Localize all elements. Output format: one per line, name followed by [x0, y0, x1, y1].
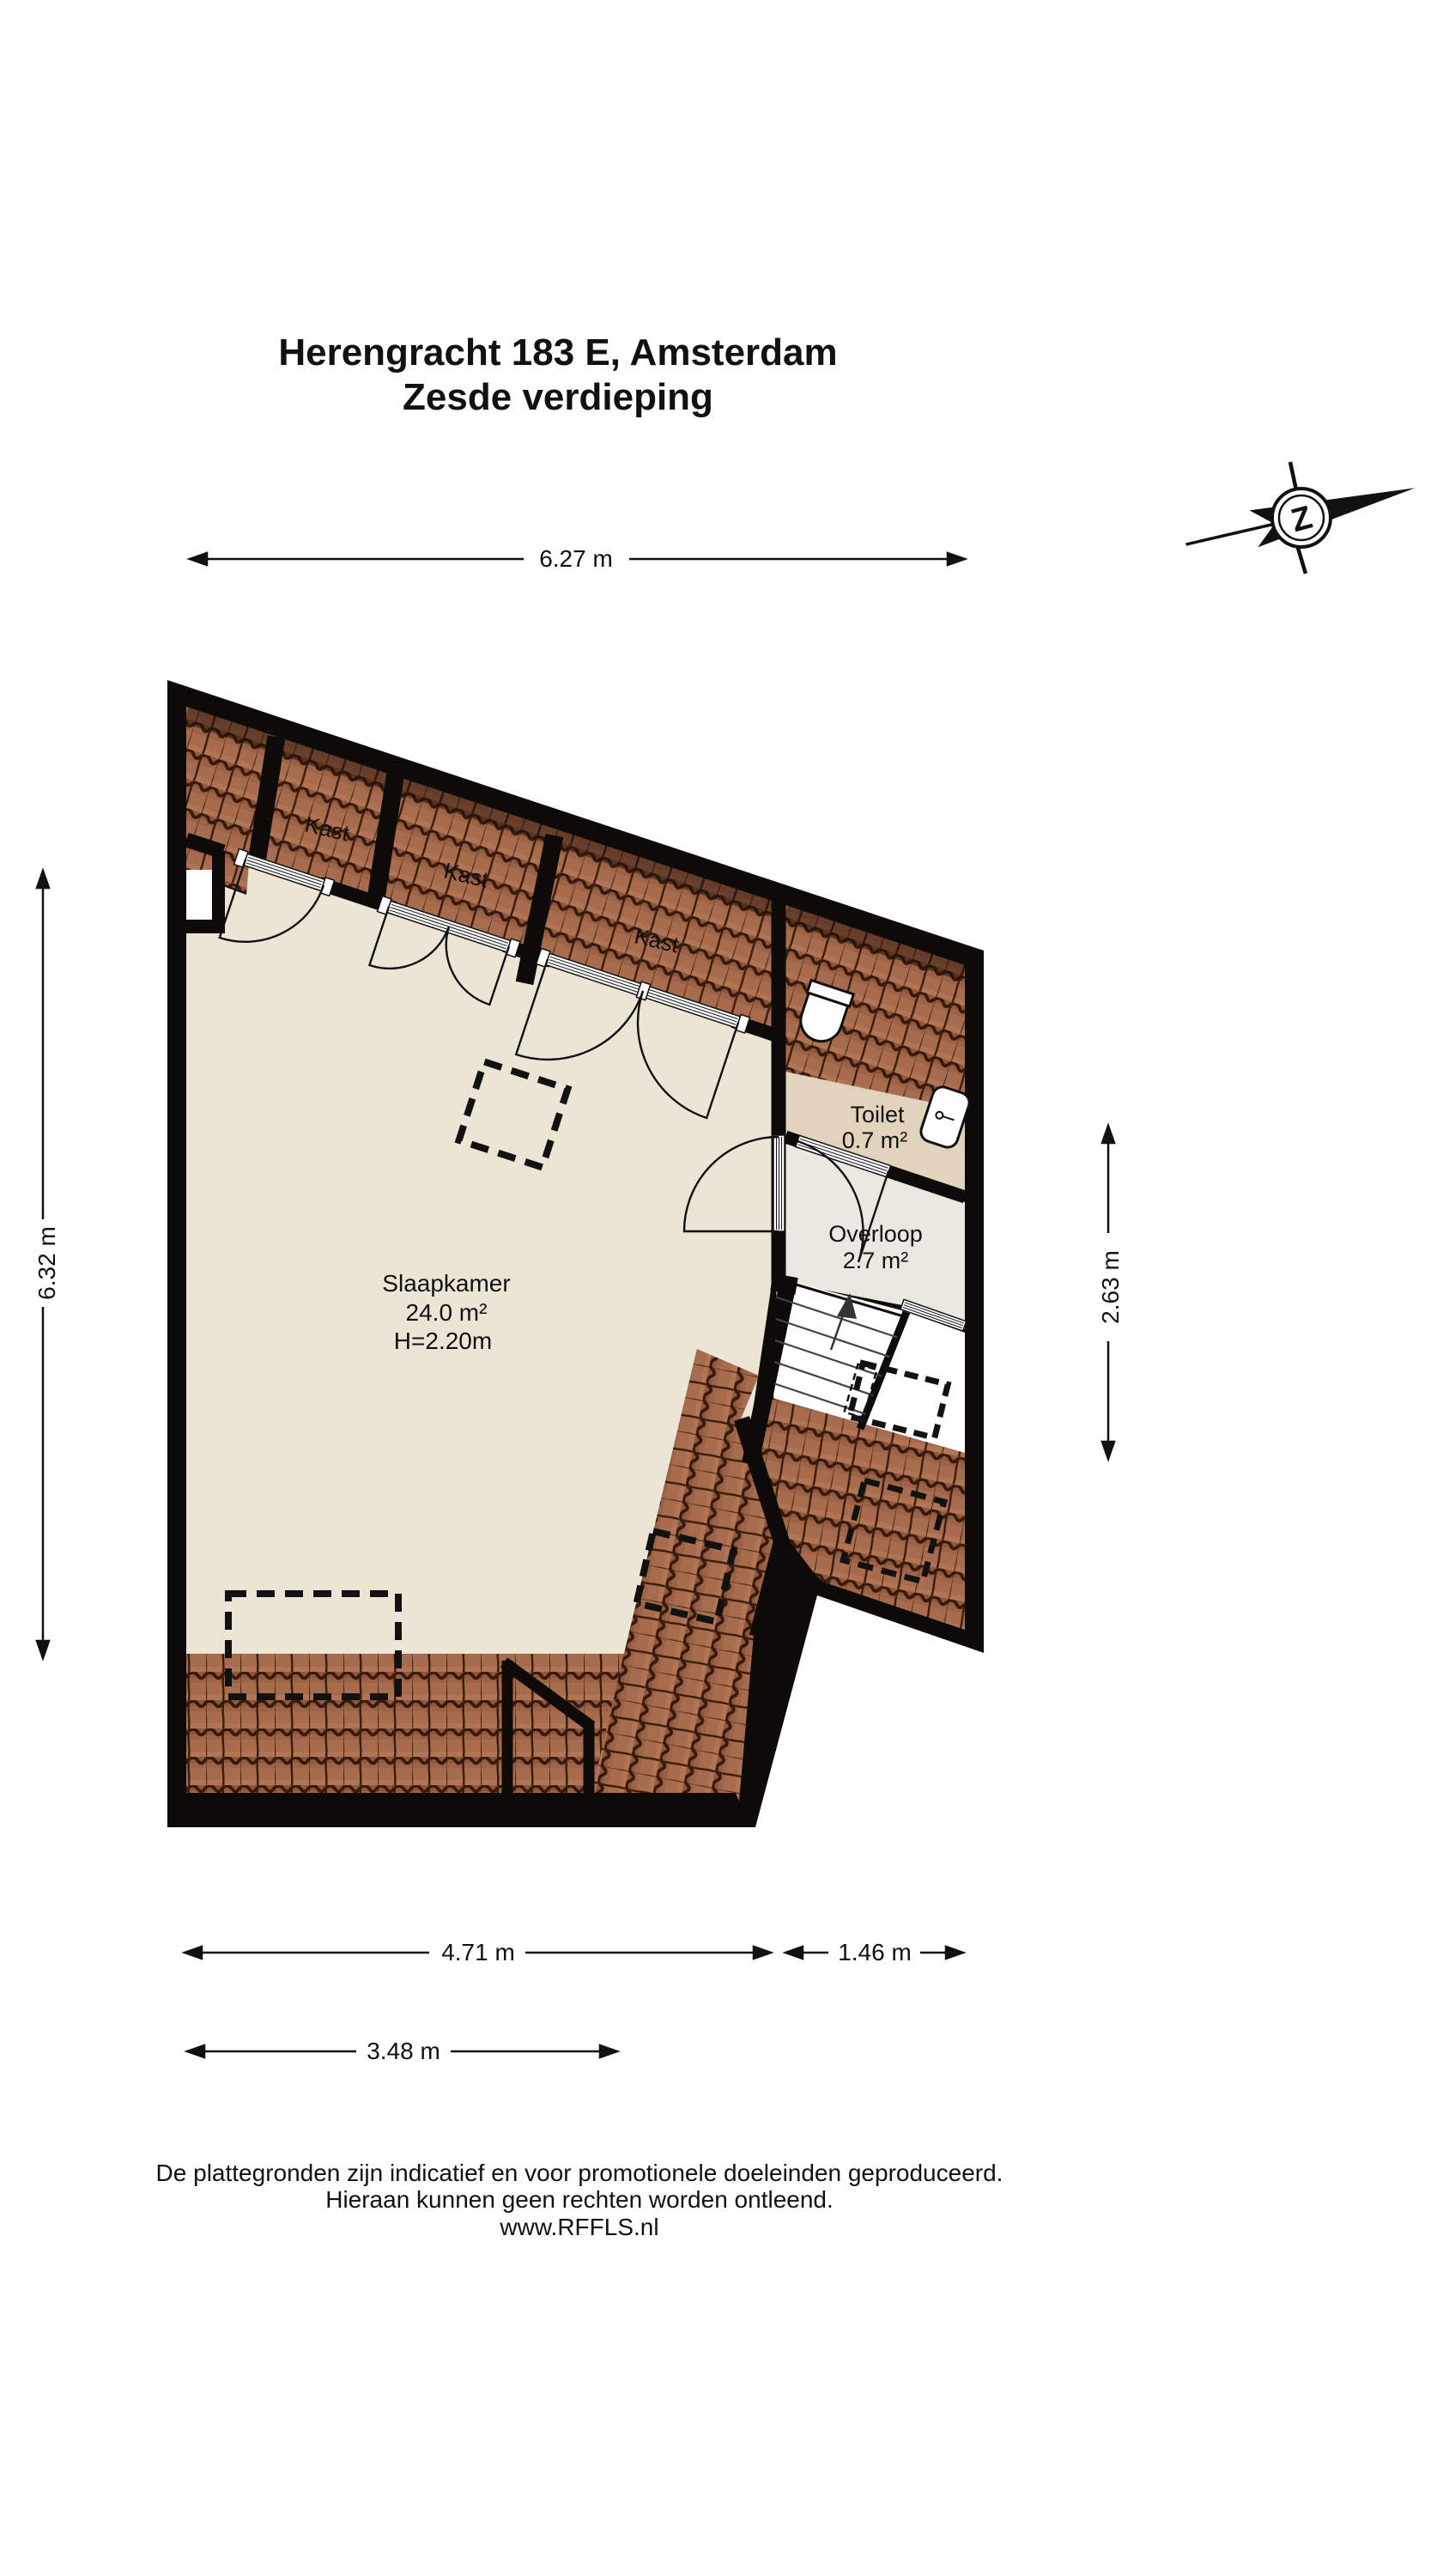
svg-text:www.RFFLS.nl: www.RFFLS.nl: [499, 2214, 658, 2240]
svg-text:3.48 m: 3.48 m: [367, 2038, 440, 2064]
svg-text:Hieraan kunnen geen rechten wo: Hieraan kunnen geen rechten worden ontle…: [325, 2186, 834, 2213]
svg-text:Herengracht 183 E, Amsterdam: Herengracht 183 E, Amsterdam: [278, 331, 837, 374]
svg-text:24.0 m²: 24.0 m²: [406, 1299, 488, 1326]
svg-text:2.63 m: 2.63 m: [1097, 1250, 1124, 1324]
svg-text:Slaapkamer: Slaapkamer: [382, 1270, 510, 1297]
svg-text:Overloop: Overloop: [828, 1221, 923, 1247]
svg-text:1.46 m: 1.46 m: [838, 1939, 912, 1965]
svg-text:Zesde verdieping: Zesde verdieping: [403, 376, 713, 418]
svg-text:4.71 m: 4.71 m: [441, 1939, 515, 1965]
svg-text:6.27 m: 6.27 m: [539, 545, 613, 572]
svg-text:6.32 m: 6.32 m: [33, 1226, 60, 1300]
svg-text:Toilet: Toilet: [850, 1102, 905, 1127]
svg-text:H=2.20m: H=2.20m: [394, 1327, 492, 1354]
svg-text:De plattegronden zijn indicati: De plattegronden zijn indicatief en voor…: [156, 2160, 1003, 2186]
svg-text:0.7 m²: 0.7 m²: [842, 1127, 908, 1153]
svg-text:2.7 m²: 2.7 m²: [843, 1248, 909, 1273]
